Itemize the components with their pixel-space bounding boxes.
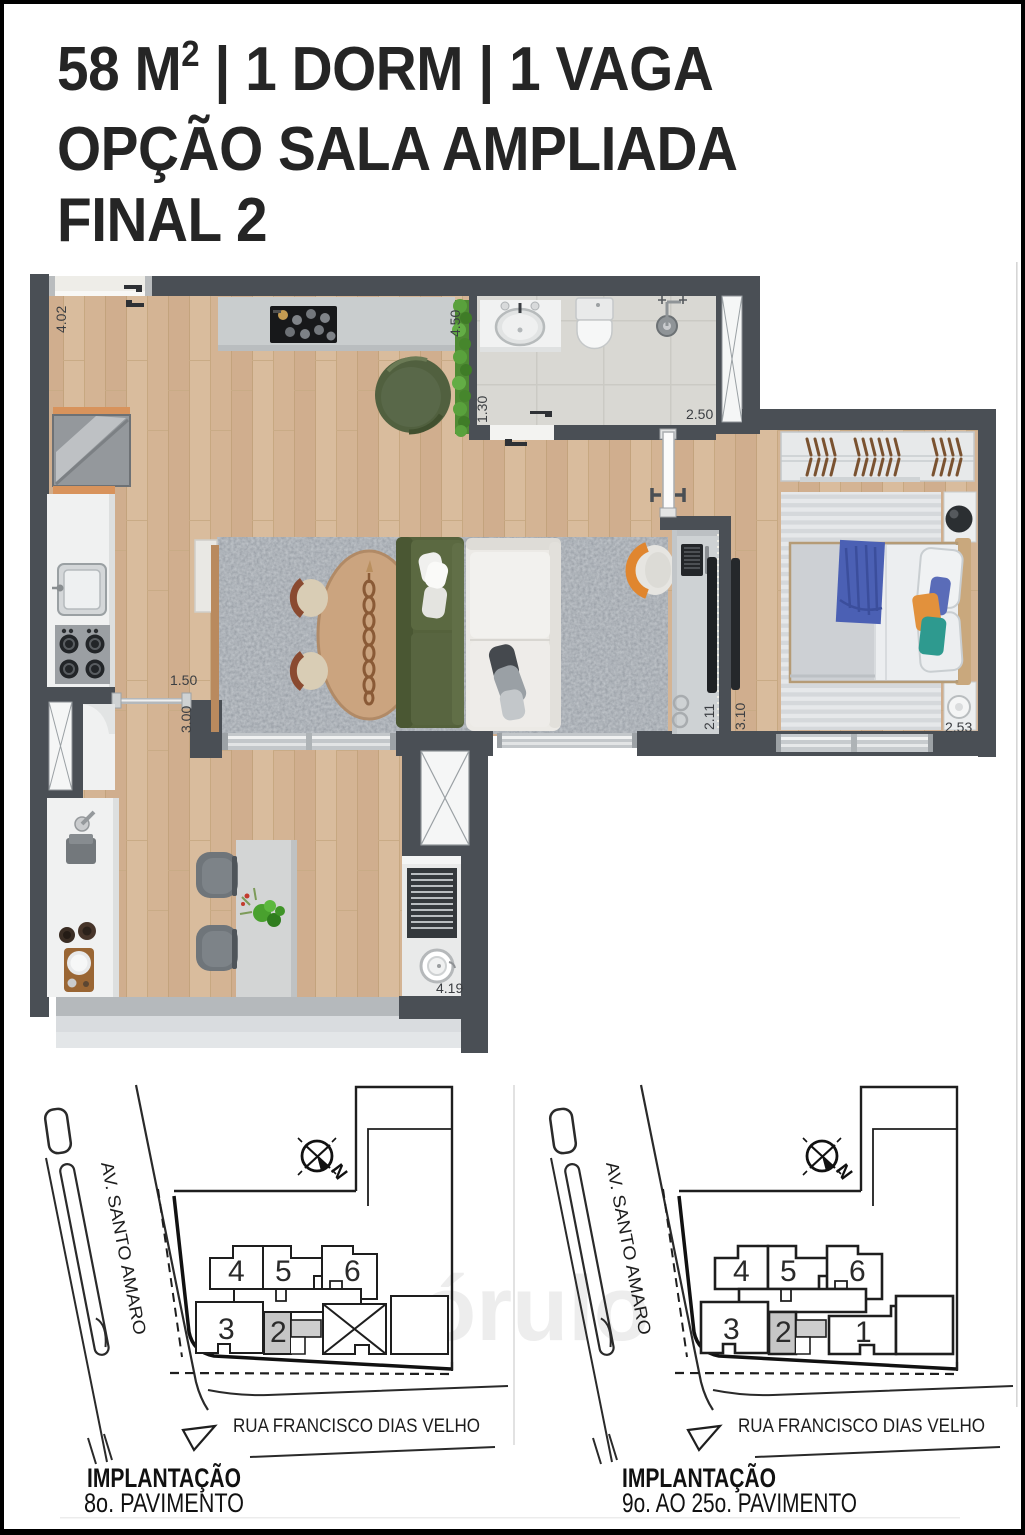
svg-text:RUA FRANCISCO DIAS VELHO: RUA FRANCISCO DIAS VELHO (233, 1415, 480, 1437)
svg-text:9o. AO 25o. PAVIMENTO: 9o. AO 25o. PAVIMENTO (622, 1488, 857, 1518)
svg-text:5: 5 (275, 1255, 292, 1288)
svg-text:2.53: 2.53 (945, 719, 972, 735)
svg-text:4.50: 4.50 (447, 310, 463, 337)
svg-text:1.30: 1.30 (474, 396, 490, 423)
svg-text:AV. SANTO AMARO: AV. SANTO AMARO (97, 1160, 150, 1337)
svg-text:4: 4 (733, 1255, 750, 1288)
svg-text:4.02: 4.02 (53, 306, 69, 333)
svg-text:6: 6 (849, 1255, 866, 1288)
svg-text:5: 5 (780, 1255, 797, 1288)
svg-text:3: 3 (723, 1313, 740, 1346)
svg-text:2: 2 (775, 1316, 792, 1349)
svg-text:2.11: 2.11 (701, 704, 717, 730)
svg-text:2: 2 (270, 1316, 287, 1349)
svg-text:3.10: 3.10 (732, 703, 748, 730)
svg-text:2.50: 2.50 (686, 406, 713, 422)
svg-text:6: 6 (344, 1255, 361, 1288)
svg-text:3.00: 3.00 (178, 706, 194, 733)
svg-text:RUA FRANCISCO DIAS VELHO: RUA FRANCISCO DIAS VELHO (738, 1415, 985, 1437)
svg-text:órulo: órulo (420, 1258, 650, 1360)
svg-text:3: 3 (218, 1313, 235, 1346)
svg-text:1: 1 (855, 1316, 872, 1349)
svg-text:8o. PAVIMENTO: 8o. PAVIMENTO (84, 1488, 244, 1518)
svg-text:4: 4 (228, 1255, 245, 1288)
svg-text:1.50: 1.50 (170, 672, 197, 688)
svg-text:4.19: 4.19 (436, 980, 463, 996)
